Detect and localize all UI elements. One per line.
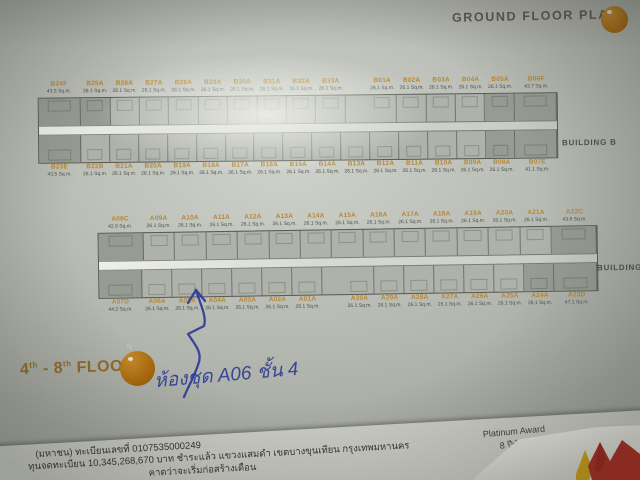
unit-id: A20A <box>489 210 521 217</box>
unit-id: A27A <box>435 294 465 301</box>
unit-label: A08C 42.8 Sq.m. <box>97 216 143 232</box>
unit-area: 26.1 Sq.m. <box>395 219 427 224</box>
unit-area: 26.1 Sq.m. <box>139 88 169 93</box>
unit-cell <box>370 132 399 159</box>
unit-label: A20A 26.1 Sq.m. <box>489 210 521 225</box>
unit-area: 26.1 Sq.m. <box>226 170 255 175</box>
unit-cell <box>269 231 301 258</box>
unit-id: A01A <box>292 296 322 303</box>
unit-cell <box>169 97 199 124</box>
unit-id: A29A <box>375 295 405 302</box>
unit-id: B32A <box>287 79 317 86</box>
unit-label: A14A 26.1 Sq.m. <box>300 213 332 228</box>
unit-cell <box>457 228 489 255</box>
unit-id: B20A <box>139 163 168 170</box>
unit-id: B04A <box>456 77 486 84</box>
unit-label: A01A 26.1 Sq.m. <box>292 296 322 311</box>
unit-label: A18A 26.1 Sq.m. <box>426 211 458 226</box>
unit-cell <box>226 133 255 160</box>
building-b-strip <box>38 92 559 163</box>
unit-label: A16A 26.1 Sq.m. <box>363 212 395 227</box>
unit-cell <box>144 233 176 260</box>
unit-area: 26.1 Sq.m. <box>174 223 206 228</box>
unit-area: 26.1 Sq.m. <box>313 169 342 174</box>
unit-label: B13A 26.1 Sq.m. <box>342 161 371 176</box>
unit-label: B08A 26.1 Sq.m. <box>487 160 516 175</box>
unit-area: 41.1 Sq.m. <box>516 167 558 172</box>
unit-label: B02A 26.1 Sq.m. <box>397 78 427 93</box>
unit-cell <box>99 270 142 298</box>
unit-label: B32A 26.1 Sq.m. <box>287 79 317 94</box>
unit-id: B10A <box>429 160 458 167</box>
unit-id: A16A <box>363 212 395 219</box>
unit-cell <box>554 263 597 291</box>
building-b-plan: B24F 43.5 Sq.m. B25A 26.1 Sq.m. B26A 26.… <box>37 75 558 180</box>
unit-cell <box>344 267 374 294</box>
unit-area: 26.1 Sq.m. <box>456 85 486 90</box>
unit-area: 26.1 Sq.m. <box>489 218 521 223</box>
unit-area: 26.1 Sq.m. <box>168 171 197 176</box>
unit-label: A09A 26.1 Sq.m. <box>143 216 175 231</box>
unit-area: 26.1 Sq.m. <box>81 171 110 176</box>
unit-id: A26A <box>465 294 495 301</box>
unit-area: 26.1 Sq.m. <box>143 223 175 228</box>
unit-area: 26.1 Sq.m. <box>375 303 405 308</box>
unit-cell <box>110 135 139 162</box>
unit-label: A22C 43.8 Sq.m. <box>552 209 598 225</box>
unit-cell <box>404 266 434 293</box>
unit-area: 42.8 Sq.m. <box>97 224 143 230</box>
unit-id: B01A <box>367 78 397 85</box>
unit-id: A22C <box>552 209 598 216</box>
unit-cell <box>332 230 364 257</box>
unit-label: A23D 47.1 Sq.m. <box>555 292 599 308</box>
unit-id: B05A <box>485 77 515 84</box>
brand-dot-icon <box>601 6 628 33</box>
unit-cell <box>524 264 554 291</box>
unit-label: B10A 26.1 Sq.m. <box>429 160 458 175</box>
unit-cell <box>292 267 322 294</box>
unit-label: A11A 26.1 Sq.m. <box>206 215 238 230</box>
unit-area: 26.1 Sq.m. <box>405 302 435 307</box>
unit-area: 26.1 Sq.m. <box>426 219 458 224</box>
unit-label: A21A 26.1 Sq.m. <box>520 210 552 225</box>
unit-label: B03A 26.1 Sq.m. <box>426 77 456 92</box>
unit-cell <box>551 226 596 254</box>
unit-label: B15A 26.1 Sq.m. <box>284 162 313 177</box>
unit-cell <box>426 94 456 121</box>
unit-area: 26.1 Sq.m. <box>429 168 458 173</box>
unit-id: A07D <box>99 299 143 306</box>
unit-area: 26.1 Sq.m. <box>269 221 301 226</box>
unit-id: A25A <box>495 293 525 300</box>
unit-id: B14A <box>313 162 342 169</box>
unit-id: B24F <box>38 81 81 88</box>
unit-area: 26.1 Sq.m. <box>255 170 284 175</box>
unit-label: B04A 26.1 Sq.m. <box>456 77 486 92</box>
unit-area: 26.1 Sq.m. <box>487 167 516 172</box>
unit-cell <box>284 133 313 160</box>
unit-area: 26.1 Sq.m. <box>206 222 238 227</box>
unit-cell <box>494 264 524 291</box>
unit-cell <box>39 98 81 125</box>
unit-area: 26.1 Sq.m. <box>237 222 269 227</box>
unit-id: B08A <box>487 160 516 167</box>
unit-cell <box>99 233 144 261</box>
unit-label: B18A 26.1 Sq.m. <box>197 163 226 178</box>
unit-area: 26.1 Sq.m. <box>110 171 139 176</box>
unit-cell <box>139 134 168 161</box>
unit-id: B19A <box>168 163 197 170</box>
unit-id: A10A <box>174 215 206 222</box>
unit-label: B19A 26.1 Sq.m. <box>168 163 197 178</box>
unit-label: B11A 26.1 Sq.m. <box>400 161 429 176</box>
unit-id: B21A <box>110 164 139 171</box>
unit-area: 26.1 Sq.m. <box>257 87 287 92</box>
unit-area: 26.1 Sq.m. <box>197 170 226 175</box>
unit-cell <box>489 227 521 254</box>
unit-area: 26.1 Sq.m. <box>316 86 346 91</box>
unit-cell <box>395 229 427 256</box>
building-b-top-units <box>39 93 557 125</box>
unit-cell <box>255 133 284 160</box>
unit-id: B09A <box>458 160 487 167</box>
unit-label: A27A 26.1 Sq.m. <box>435 294 465 309</box>
unit-label: A13A 26.1 Sq.m. <box>269 214 301 229</box>
unit-cell <box>428 131 457 158</box>
unit-cell <box>368 95 398 122</box>
unit-area: 44.2 Sq.m. <box>99 307 143 313</box>
unit-cell <box>228 96 258 123</box>
unit-cell <box>464 265 494 292</box>
unit-cell <box>316 96 346 123</box>
unit-label: B22B 26.1 Sq.m. <box>80 164 109 179</box>
unit-label: B24F 43.5 Sq.m. <box>38 81 81 96</box>
unit-cell <box>520 227 552 254</box>
floor-end-sup: th <box>63 359 72 368</box>
unit-label: B05A 26.1 Sq.m. <box>485 77 515 92</box>
unit-cell <box>457 131 486 158</box>
unit-id: A24A <box>525 293 555 300</box>
unit-id: A11A <box>206 215 238 222</box>
unit-id: A15A <box>332 213 364 220</box>
unit-label: A25A 26.1 Sq.m. <box>495 293 525 308</box>
unit-id: B17A <box>226 162 255 169</box>
unit-label: A30A 26.1 Sq.m. <box>345 296 375 311</box>
unit-id: A18A <box>426 211 458 218</box>
unit-label: A28A 26.1 Sq.m. <box>405 295 435 310</box>
unit-id: B18A <box>197 163 226 170</box>
unit-area: 26.1 Sq.m. <box>525 300 555 305</box>
unit-area: 26.1 Sq.m. <box>169 88 199 93</box>
unit-area: 26.1 Sq.m. <box>457 218 489 223</box>
unit-label: A12A 26.1 Sq.m. <box>237 214 269 229</box>
floor-plan-photo: GROUND FLOOR PLAN B24F 43.5 Sq.m. B25A 2… <box>0 0 640 480</box>
unit-label: B09A 26.1 Sq.m. <box>458 160 487 175</box>
unit-label: B06F 43.7 Sq.m. <box>515 76 558 91</box>
unit-id: A19A <box>457 211 489 218</box>
unit-cell <box>175 232 207 259</box>
building-a-name: BUILDING A <box>597 263 640 273</box>
unit-cell <box>110 98 140 125</box>
unit-area: 43.5 Sq.m. <box>38 172 80 177</box>
unit-label: B12A 26.1 Sq.m. <box>371 161 400 176</box>
unit-area: 43.5 Sq.m. <box>38 89 81 94</box>
unit-label: A29A 26.1 Sq.m. <box>375 295 405 310</box>
unit-area: 26.1 Sq.m. <box>371 168 400 173</box>
unit-label: B16A 26.1 Sq.m. <box>255 162 284 177</box>
unit-area: 26.1 Sq.m. <box>228 87 258 92</box>
unit-id: B22B <box>80 164 109 171</box>
unit-area: 26.1 Sq.m. <box>300 221 332 226</box>
unit-label: A19A 26.1 Sq.m. <box>457 211 489 226</box>
unit-label: B31A 26.1 Sq.m. <box>257 79 287 94</box>
unit-area: 26.1 Sq.m. <box>80 88 110 93</box>
floor-start-sup: th <box>29 360 38 369</box>
unit-area: 26.1 Sq.m. <box>435 302 465 307</box>
unit-label: B20A 26.1 Sq.m. <box>139 163 168 178</box>
unit-label: B33A 26.1 Sq.m. <box>316 79 346 94</box>
unit-id: B03A <box>426 77 456 84</box>
unit-id: B16A <box>255 162 284 169</box>
unit-label: B30A 26.1 Sq.m. <box>228 79 258 94</box>
unit-label: B28A 26.1 Sq.m. <box>169 80 199 95</box>
unit-area: 26.1 Sq.m. <box>345 303 375 308</box>
unit-area: 26.1 Sq.m. <box>198 87 228 92</box>
unit-label: A10A 26.1 Sq.m. <box>174 215 206 230</box>
unit-label: B21A 26.1 Sq.m. <box>110 164 139 179</box>
unit-area: 26.1 Sq.m. <box>287 86 317 91</box>
building-b-name: BUILDING B <box>562 138 617 148</box>
unit-id: A09A <box>143 216 175 223</box>
unit-label: B27A 26.1 Sq.m. <box>139 80 169 95</box>
unit-id: B23E <box>38 164 80 171</box>
unit-cell <box>300 230 332 257</box>
unit-id: B33A <box>316 79 346 86</box>
unit-area: 26.1 Sq.m. <box>465 301 495 306</box>
unit-id: B12A <box>371 161 400 168</box>
unit-cell <box>168 134 197 161</box>
unit-label: B25A 26.1 Sq.m. <box>80 81 110 96</box>
unit-area: 26.1 Sq.m. <box>495 301 525 306</box>
unit-id: A08C <box>97 216 143 223</box>
unit-cell <box>515 93 557 120</box>
unit-label: A07D 44.2 Sq.m. <box>99 299 143 315</box>
unit-cell <box>363 229 395 256</box>
unit-id: B31A <box>257 79 287 86</box>
unit-area: 26.1 Sq.m. <box>520 217 552 222</box>
unit-area: 26.1 Sq.m. <box>363 220 395 225</box>
unit-id: B15A <box>284 162 313 169</box>
unit-id: B30A <box>228 79 258 86</box>
unit-label: A24A 26.1 Sq.m. <box>525 293 555 308</box>
unit-label: B14A 26.1 Sq.m. <box>313 162 342 177</box>
unit-id: A23D <box>555 292 599 299</box>
unit-label: B26A 26.1 Sq.m. <box>110 81 140 96</box>
unit-cell <box>426 228 458 255</box>
unit-cell <box>140 97 170 124</box>
unit-id: B07E <box>516 159 558 166</box>
unit-id: B28A <box>169 80 199 87</box>
unit-cell <box>434 265 464 292</box>
unit-id: B11A <box>400 161 429 168</box>
unit-cell <box>341 132 370 159</box>
unit-label: A15A 26.1 Sq.m. <box>332 213 364 228</box>
unit-id: B27A <box>139 80 169 87</box>
page-title: GROUND FLOOR PLAN <box>452 7 620 25</box>
unit-id: B13A <box>342 161 371 168</box>
unit-label: B23E 43.5 Sq.m. <box>38 164 80 179</box>
north-indicator: N <box>127 344 132 351</box>
unit-id: B06F <box>515 76 558 83</box>
unit-id: B02A <box>397 78 427 85</box>
unit-area: 26.1 Sq.m. <box>400 168 429 173</box>
unit-cell <box>39 135 81 162</box>
unit-area: 26.1 Sq.m. <box>342 169 371 174</box>
unit-cell <box>397 95 427 122</box>
unit-area: 26.1 Sq.m. <box>458 168 487 173</box>
unit-label: B01A 26.1 Sq.m. <box>367 78 397 93</box>
unit-label: B17A 26.1 Sq.m. <box>226 162 255 177</box>
unit-cell <box>287 96 317 123</box>
floor-dash: - <box>38 360 54 378</box>
floor-range-label: 4th - 8th FLOOR <box>20 357 136 379</box>
unit-label: A26A 26.1 Sq.m. <box>465 294 495 309</box>
unit-id: B29A <box>198 80 228 87</box>
unit-cell <box>206 232 238 259</box>
unit-id: A13A <box>269 214 301 221</box>
unit-id: B25A <box>80 81 110 88</box>
unit-id: A30A <box>345 296 375 303</box>
unit-cell <box>456 94 486 121</box>
unit-cell <box>485 94 515 121</box>
unit-cell <box>197 134 226 161</box>
unit-cell <box>257 96 287 123</box>
unit-label: A17A 26.1 Sq.m. <box>394 212 426 227</box>
unit-area: 26.1 Sq.m. <box>139 171 168 176</box>
unit-area: 26.1 Sq.m. <box>293 304 323 309</box>
unit-area: 26.1 Sq.m. <box>426 85 456 90</box>
unit-cell <box>374 266 404 293</box>
red-yellow-logo-icon <box>570 438 640 480</box>
unit-area: 26.1 Sq.m. <box>397 85 427 90</box>
unit-id: A14A <box>300 213 332 220</box>
unit-cell <box>486 131 515 158</box>
unit-id: A21A <box>520 210 552 217</box>
unit-id: B26A <box>110 81 140 88</box>
unit-cell <box>238 231 270 258</box>
unit-cell <box>81 98 111 125</box>
unit-area: 26.1 Sq.m. <box>332 220 364 225</box>
unit-area: 43.8 Sq.m. <box>552 217 598 223</box>
unit-label: B07E 41.1 Sq.m. <box>516 159 558 174</box>
unit-id: A17A <box>394 212 426 219</box>
unit-area: 26.1 Sq.m. <box>368 85 398 90</box>
unit-id: A28A <box>405 295 435 302</box>
unit-area: 26.1 Sq.m. <box>485 84 515 89</box>
unit-cell <box>198 97 228 124</box>
unit-cell <box>399 132 428 159</box>
unit-area: 43.7 Sq.m. <box>515 84 558 89</box>
unit-cell <box>515 130 557 157</box>
unit-cell <box>313 133 342 160</box>
unit-label: B29A 26.1 Sq.m. <box>198 80 228 95</box>
unit-id: A12A <box>237 214 269 221</box>
building-b-bottom-units <box>39 130 557 162</box>
unit-area: 26.1 Sq.m. <box>110 88 140 93</box>
unit-cell <box>81 135 110 162</box>
unit-area: 47.1 Sq.m. <box>555 300 599 306</box>
unit-area: 26.1 Sq.m. <box>284 169 313 174</box>
